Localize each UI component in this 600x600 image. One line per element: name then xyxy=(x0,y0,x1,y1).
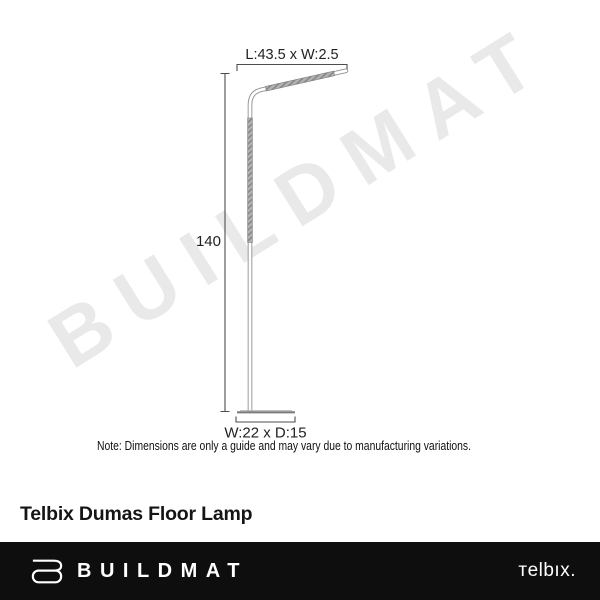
arm-dimension-bracket: L:43.5 x W:2.5 xyxy=(237,47,347,71)
product-title: Telbix Dumas Floor Lamp xyxy=(20,503,252,526)
telbix-logo: тelbıx. xyxy=(518,560,576,582)
buildmat-b-icon xyxy=(30,555,64,587)
arm-dimension-label: L:43.5 x W:2.5 xyxy=(245,47,338,63)
footer-brand-bar: BUILDMAT тelbıx. xyxy=(0,542,600,600)
lamp-tube-outline xyxy=(250,71,346,411)
lamp-tube-fill xyxy=(250,71,346,411)
product-dimension-sheet: BUILDMAT L:43.5 x W:2.5 140 xyxy=(0,0,600,600)
dimension-note: Note: Dimensions are only a guide and ma… xyxy=(97,438,471,453)
height-dimension-line: 140 xyxy=(196,73,230,412)
height-dimension-label: 140 xyxy=(196,233,221,250)
floor-lamp-drawing xyxy=(237,71,346,413)
arm-led-section xyxy=(265,71,334,91)
floor-lamp-dimension-diagram: L:43.5 x W:2.5 140 W:22 x D:15 Note: D xyxy=(0,0,600,480)
buildmat-wordmark: BUILDMAT xyxy=(77,560,248,583)
pole-led-section xyxy=(248,118,253,243)
